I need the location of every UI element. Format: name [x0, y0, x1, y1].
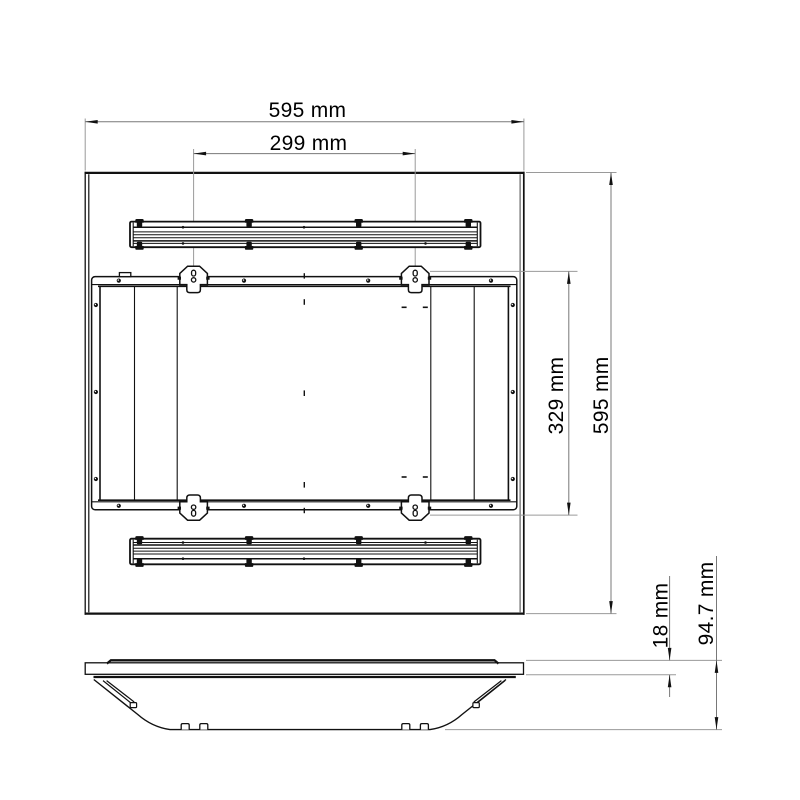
svg-text:329 mm: 329 mm — [545, 357, 568, 435]
svg-text:299 mm: 299 mm — [270, 132, 348, 155]
svg-text:595 mm: 595 mm — [269, 99, 347, 122]
svg-text:18 mm: 18 mm — [650, 583, 673, 649]
svg-text:94.7 mm: 94.7 mm — [695, 562, 718, 646]
svg-text:595 mm: 595 mm — [590, 356, 613, 434]
